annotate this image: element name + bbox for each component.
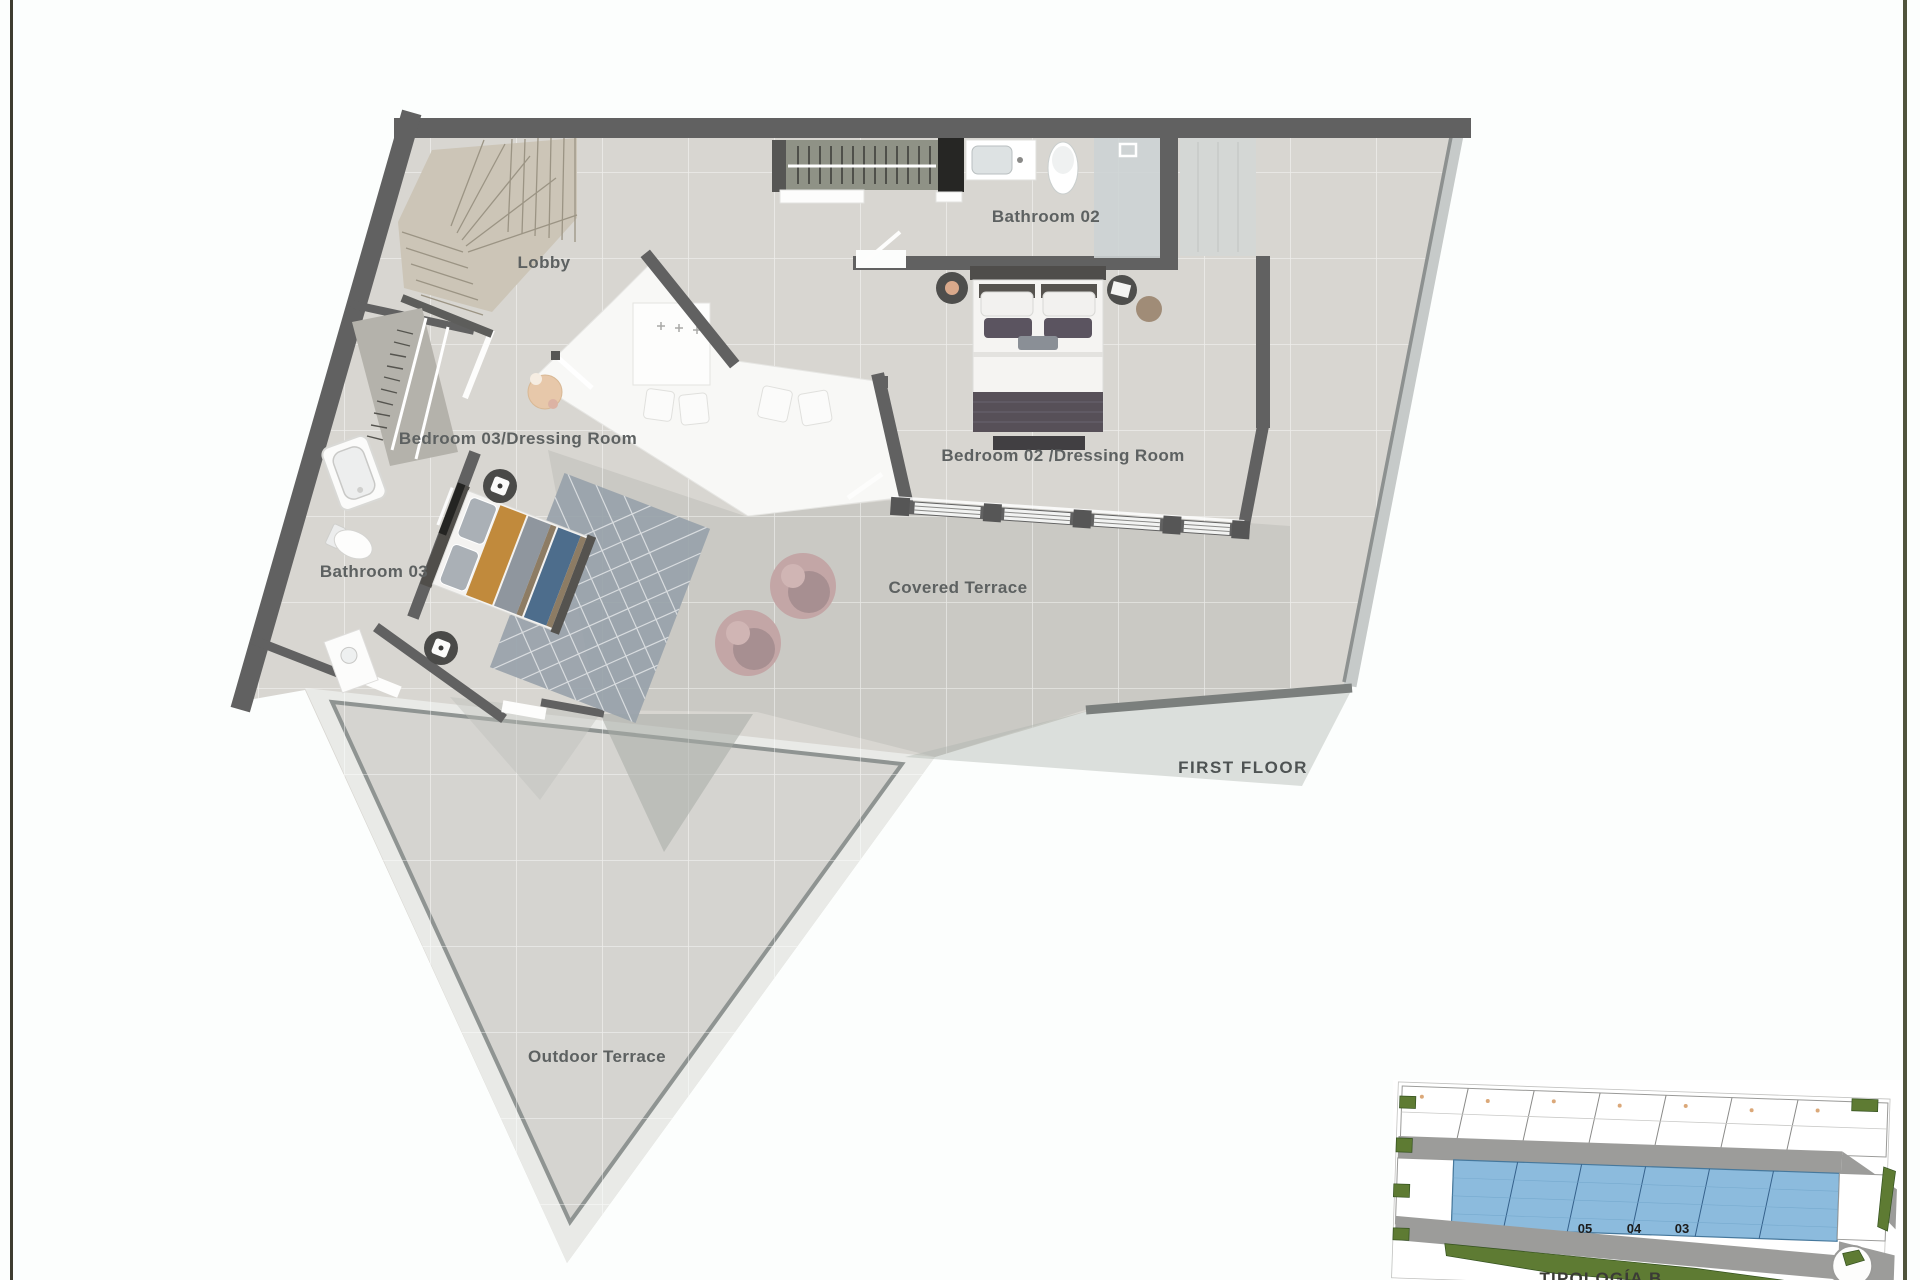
label-covered-terrace: Covered Terrace: [889, 578, 1028, 597]
inset-title: TIPOLOGÍA B: [1539, 1269, 1662, 1280]
wall-bath02-right: [1160, 138, 1178, 270]
tall-cabinet: [938, 138, 964, 192]
label-bedroom-02: Bedroom 02 /Dressing Room: [941, 446, 1184, 465]
inset-unit-number-04: 04: [1627, 1221, 1642, 1236]
label-outdoor-terrace: Outdoor Terrace: [528, 1047, 666, 1066]
site-plan-inset: 05 04 03 TIPOLOGÍA B: [1390, 1080, 1903, 1280]
nightstand-03-bottom: [424, 631, 458, 665]
label-bedroom-03: Bedroom 03/Dressing Room: [399, 429, 637, 448]
label-bathroom-03: Bathroom 03: [320, 562, 428, 581]
inset-unit-number-03: 03: [1675, 1221, 1689, 1236]
bed-02: [970, 266, 1106, 432]
floor-title: FIRST FLOOR: [1178, 758, 1308, 777]
faucet: [1017, 157, 1023, 163]
page-frame-left: [10, 0, 13, 1280]
label-lobby: Lobby: [518, 253, 571, 272]
wall-dressing02-right: [1256, 256, 1270, 428]
floor-plan-canvas: Lobby Bathroom 02 Bedroom 03/Dressing Ro…: [0, 0, 1920, 1280]
label-bathroom-02: Bathroom 02: [992, 207, 1100, 226]
bench: [780, 190, 864, 203]
nightstand-03-top: [483, 469, 517, 503]
void-door-post: [551, 351, 560, 360]
nightstand-02-left: [936, 272, 968, 304]
sink-basin: [972, 146, 1012, 174]
inset-unit-number-05: 05: [1578, 1221, 1592, 1236]
wall-post: [876, 376, 888, 388]
floor-plan-page: Lobby Bathroom 02 Bedroom 03/Dressing Ro…: [0, 0, 1920, 1280]
page-frame-right: [1903, 0, 1907, 1280]
